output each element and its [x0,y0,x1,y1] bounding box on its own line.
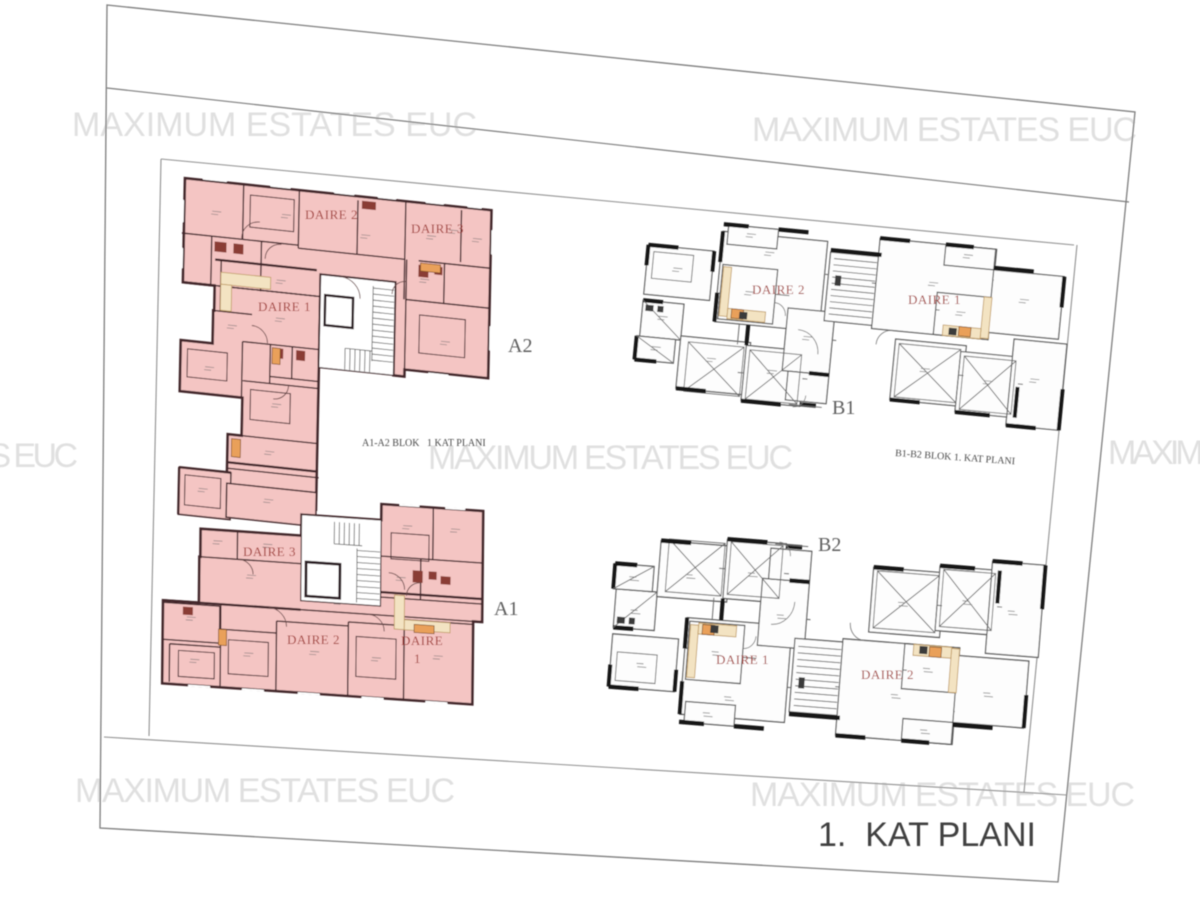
svg-text:A2: A2 [508,335,532,357]
svg-text:MAXIMUM ESTATES EUC: MAXIMUM ESTATES EUC [75,772,455,810]
svg-text:MAXIMUM E: MAXIMUM E [1108,434,1200,472]
svg-text:1: 1 [414,651,421,666]
svg-text:DAIRE: DAIRE [401,633,443,648]
svg-text:1. KAT PLANI: 1. KAT PLANI [818,816,1036,854]
svg-text:MAXIMUM ESTATES EUC: MAXIMUM ESTATES EUC [752,111,1137,149]
svg-text:MAXIMUM ESTATES EUC: MAXIMUM ESTATES EUC [750,776,1135,814]
svg-text:B2: B2 [818,534,841,556]
svg-text:DAIRE 2: DAIRE 2 [287,632,340,647]
svg-text:A1: A1 [494,598,518,620]
svg-text:DAIRE 3: DAIRE 3 [411,221,464,236]
svg-text:DAIRE 1: DAIRE 1 [908,292,961,307]
svg-text:DAIRE 3: DAIRE 3 [243,544,296,559]
svg-text:DAIRE 1: DAIRE 1 [716,652,769,667]
svg-text:MAXIMUM ESTATES EUC: MAXIMUM ESTATES EUC [72,106,477,144]
svg-text:DAIRE 2: DAIRE 2 [861,667,914,682]
svg-text:DAIRE 1: DAIRE 1 [258,299,311,314]
svg-text:DAIRE 2: DAIRE 2 [305,207,358,222]
svg-text:B1: B1 [832,397,855,419]
svg-text:MAXIMUM ESTATES EUC: MAXIMUM ESTATES EUC [0,437,78,475]
svg-text:DAIRE 2: DAIRE 2 [752,282,805,297]
svg-text:A1-A2 BLOK 1 KAT PLANI: A1-A2 BLOK 1 KAT PLANI [362,438,486,449]
